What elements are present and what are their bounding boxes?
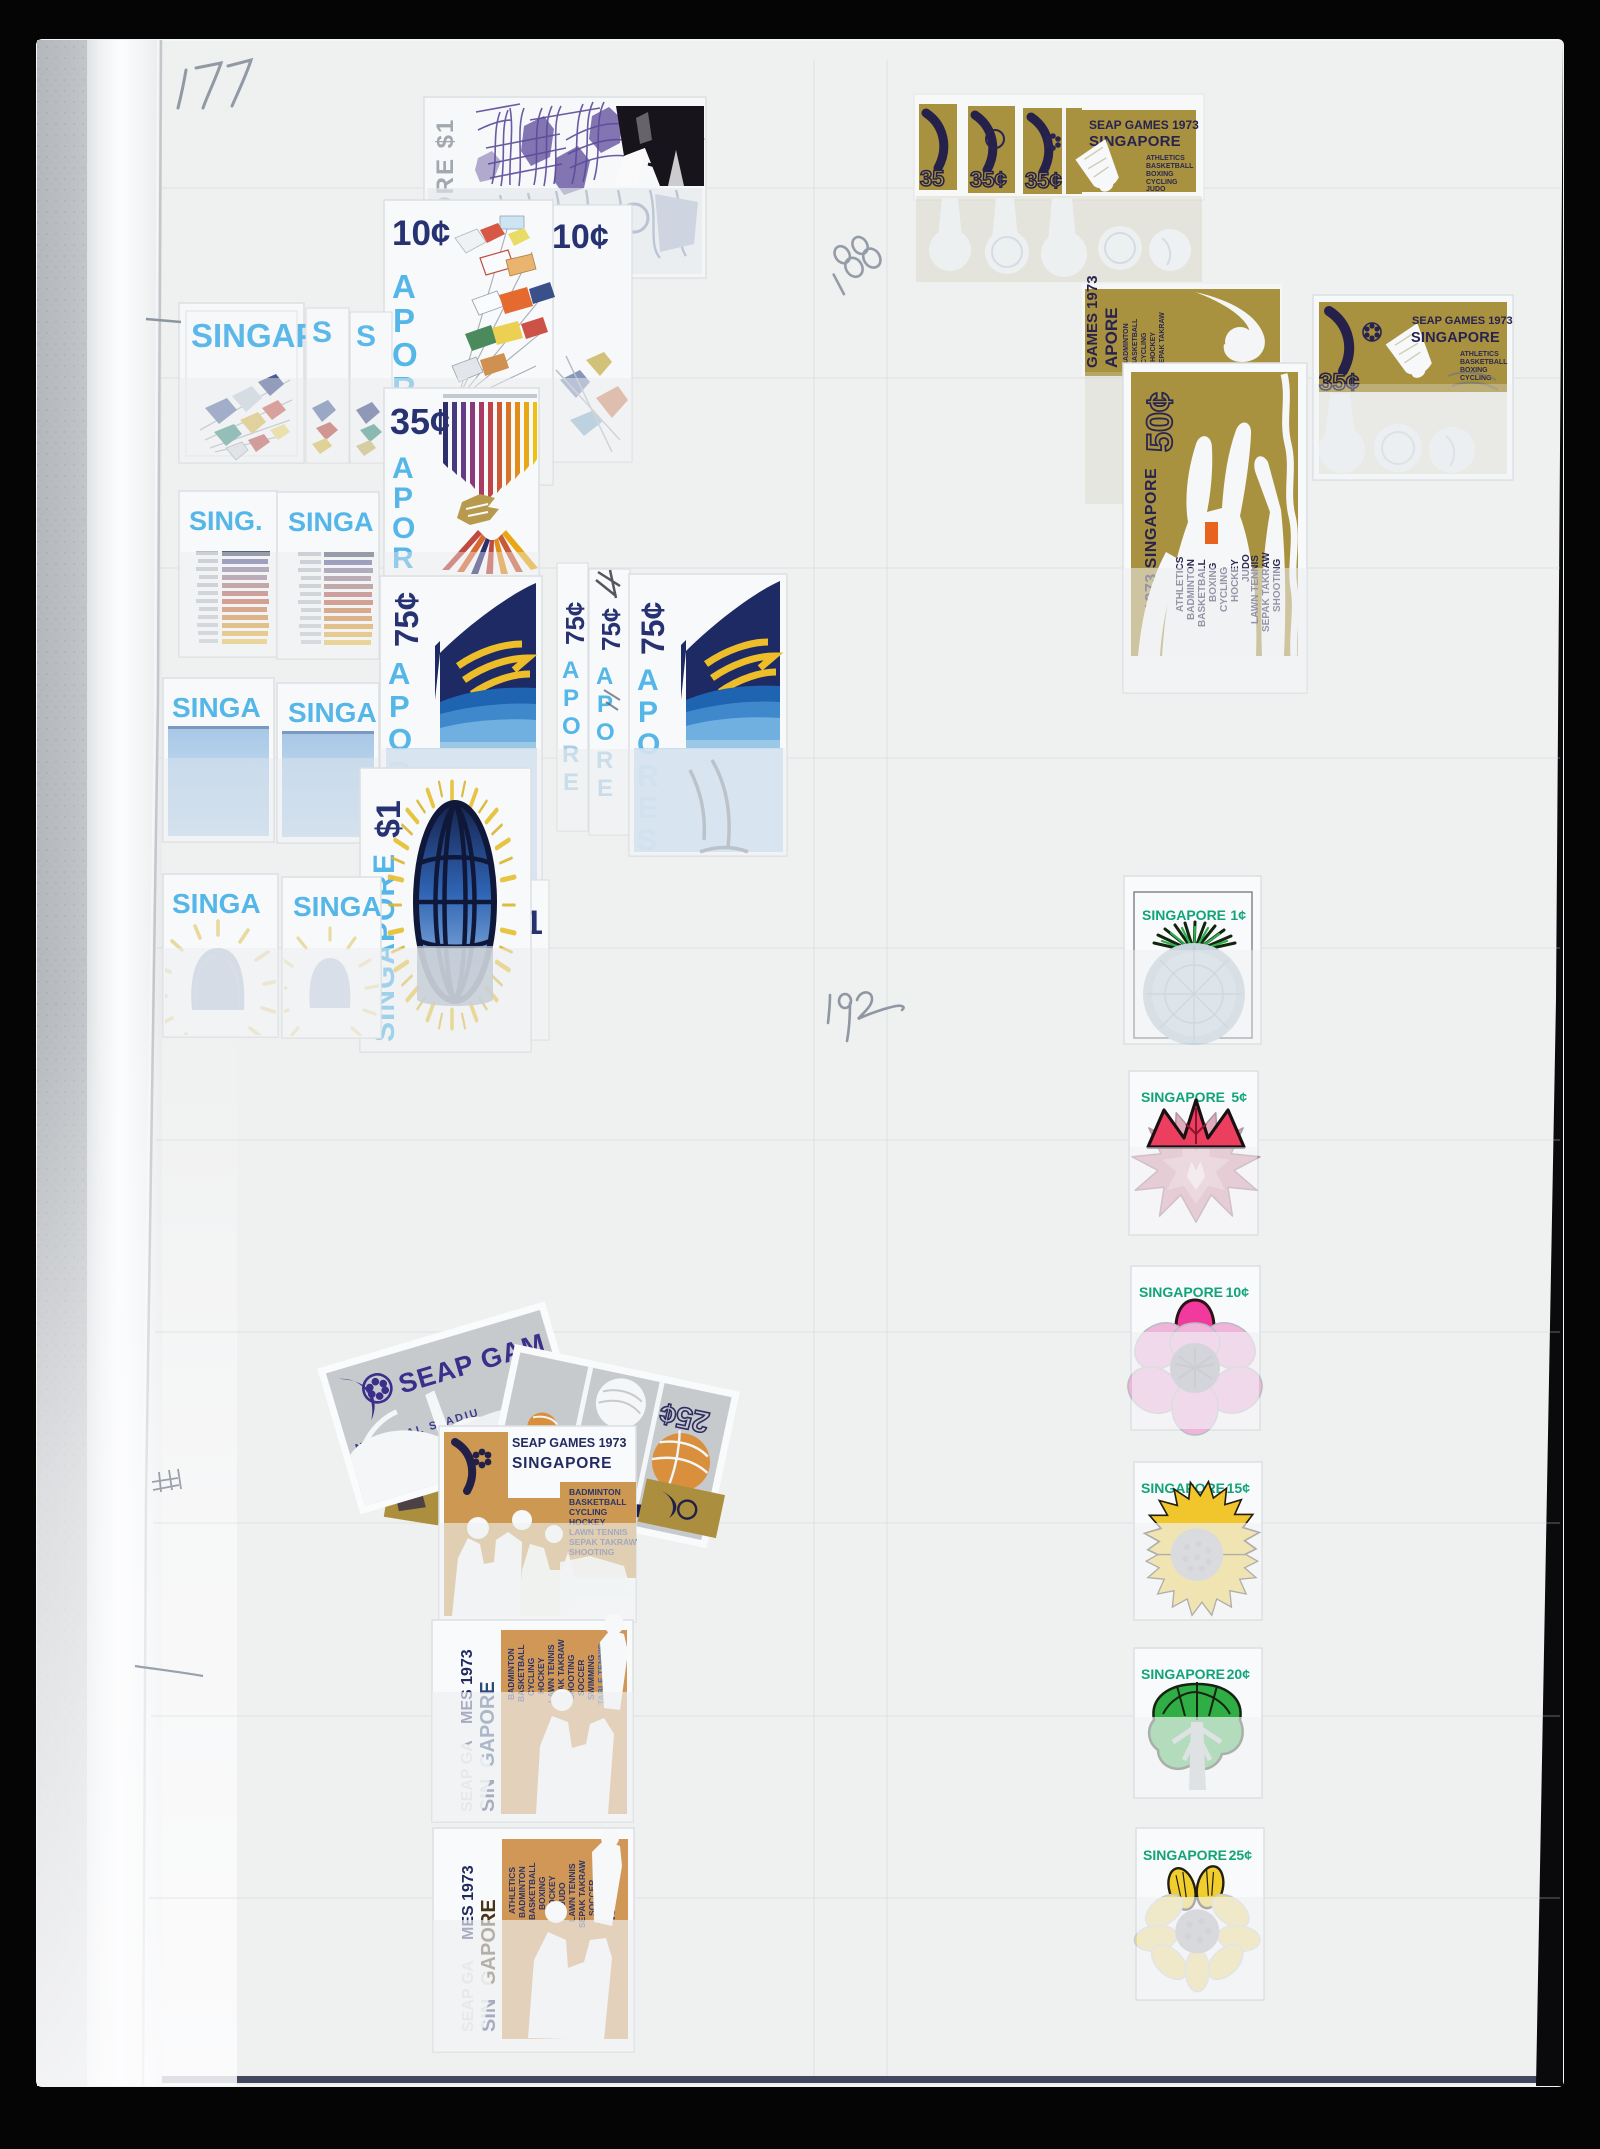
svg-text:SINGAPORE: SINGAPORE — [512, 1455, 612, 1472]
svg-text:O: O — [392, 336, 418, 373]
svg-text:P: P — [393, 302, 415, 339]
svg-text:SINGA: SINGA — [172, 692, 261, 723]
svg-text:ATHLETICS: ATHLETICS — [507, 1867, 517, 1914]
svg-text:20¢: 20¢ — [1227, 1666, 1251, 1682]
svg-text:BADMINTON: BADMINTON — [517, 1866, 527, 1918]
svg-text:SINGAPORE: SINGAPORE — [1141, 1089, 1225, 1105]
svg-text:35: 35 — [920, 166, 944, 191]
svg-text:5¢: 5¢ — [1231, 1089, 1247, 1105]
svg-text:CYCLING: CYCLING — [1146, 179, 1178, 186]
svg-text:ATHLETICS: ATHLETICS — [1460, 351, 1499, 358]
svg-text:P: P — [393, 482, 413, 515]
svg-text:BADMINTON: BADMINTON — [569, 1487, 621, 1497]
svg-text:A: A — [637, 664, 659, 697]
svg-text:HOCKEY: HOCKEY — [536, 1657, 546, 1694]
svg-text:A: A — [392, 268, 416, 305]
svg-text:P: P — [389, 689, 410, 724]
svg-text:BADMINTON: BADMINTON — [1123, 323, 1130, 366]
svg-text:$1: $1 — [370, 800, 408, 838]
svg-text:CYCLING: CYCLING — [569, 1507, 608, 1517]
svg-text:S: S — [312, 316, 332, 349]
svg-text:SEAP GAMES 1973: SEAP GAMES 1973 — [512, 1436, 626, 1450]
svg-text:SEPAK TAKRAW: SEPAK TAKRAW — [1159, 312, 1166, 368]
svg-text:25¢: 25¢ — [1229, 1847, 1253, 1863]
svg-text:A: A — [388, 656, 410, 691]
svg-text:A: A — [596, 663, 613, 690]
svg-text:SINGAP: SINGAP — [191, 317, 318, 354]
svg-text:75¢: 75¢ — [388, 592, 425, 647]
svg-text:SINGAPORE: SINGAPORE — [1141, 1666, 1225, 1682]
svg-text:SINGA: SINGA — [288, 507, 374, 537]
svg-text:BASKETBALL: BASKETBALL — [527, 1862, 537, 1920]
svg-text:SINGA: SINGA — [293, 891, 382, 922]
svg-text:O: O — [596, 719, 615, 746]
svg-text:BOXING: BOXING — [537, 1876, 547, 1910]
svg-text:GAMES 1973: GAMES 1973 — [1084, 275, 1101, 368]
svg-text:1¢: 1¢ — [1230, 907, 1246, 923]
svg-text:A: A — [562, 657, 579, 684]
svg-text:BASKETBALL: BASKETBALL — [1460, 359, 1508, 366]
svg-text:BASKETBALL: BASKETBALL — [569, 1497, 627, 1507]
svg-text:15¢: 15¢ — [1227, 1480, 1251, 1496]
svg-text:BASKETBALL: BASKETBALL — [1132, 318, 1139, 366]
svg-text:SEAP GAMES 1973: SEAP GAMES 1973 — [1412, 315, 1513, 327]
svg-text:SOCCER: SOCCER — [576, 1660, 586, 1696]
svg-text:SINGAPORE: SINGAPORE — [1411, 330, 1500, 346]
svg-text:S: S — [356, 320, 376, 353]
svg-text:APORE: APORE — [1102, 308, 1121, 368]
svg-text:SINGAPORE: SINGAPORE — [1142, 907, 1226, 923]
svg-text:10¢: 10¢ — [392, 214, 450, 253]
svg-text:SEPAK TAKRAW: SEPAK TAKRAW — [577, 1859, 587, 1928]
svg-text:BOXING: BOXING — [1146, 171, 1174, 178]
svg-text:SINGAPORE: SINGAPORE — [1139, 1284, 1223, 1300]
svg-text:10¢: 10¢ — [1226, 1284, 1250, 1300]
svg-text:ATHLETICS: ATHLETICS — [1146, 155, 1185, 162]
svg-text:SING.: SING. — [189, 506, 263, 536]
svg-text:P: P — [563, 685, 579, 712]
svg-text:35¢: 35¢ — [390, 401, 450, 442]
svg-text:LAWN TENNIS: LAWN TENNIS — [567, 1863, 577, 1922]
svg-text:O: O — [392, 512, 415, 545]
svg-text:A: A — [392, 452, 414, 485]
svg-text:SINGAPORE: SINGAPORE — [1143, 1847, 1227, 1863]
svg-text:JUDO: JUDO — [1146, 186, 1166, 193]
svg-text:SEAP GAMES 1973: SEAP GAMES 1973 — [1089, 118, 1199, 132]
svg-text:CYCLING: CYCLING — [1141, 332, 1148, 364]
svg-text:75¢: 75¢ — [560, 602, 590, 645]
svg-text:SINGA: SINGA — [288, 697, 377, 728]
svg-text:75¢: 75¢ — [635, 601, 671, 655]
svg-text:SINGA: SINGA — [172, 888, 261, 919]
svg-text:35¢: 35¢ — [1025, 168, 1062, 193]
svg-text:P: P — [638, 696, 658, 729]
svg-text:O: O — [562, 713, 581, 740]
svg-text:10¢: 10¢ — [552, 218, 609, 256]
svg-text:75¢: 75¢ — [596, 608, 626, 651]
svg-text:CYCLING: CYCLING — [526, 1657, 536, 1696]
svg-text:35¢: 35¢ — [970, 167, 1007, 192]
svg-text:50¢: 50¢ — [1139, 392, 1180, 452]
svg-text:BASKETBALL: BASKETBALL — [1146, 163, 1194, 170]
svg-text:HOCKEY: HOCKEY — [1150, 332, 1157, 362]
